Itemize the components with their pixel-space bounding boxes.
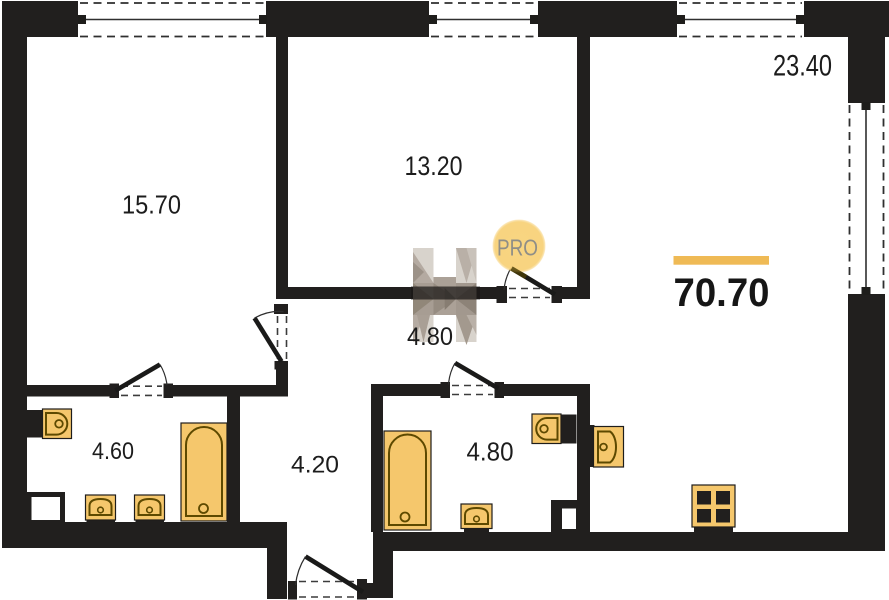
- svg-text:4.20: 4.20: [291, 452, 339, 479]
- svg-text:4.80: 4.80: [407, 323, 453, 351]
- svg-text:4.60: 4.60: [92, 438, 134, 465]
- svg-text:PRO: PRO: [497, 235, 538, 261]
- svg-text:23.40: 23.40: [773, 50, 832, 83]
- svg-text:70.70: 70.70: [674, 271, 770, 315]
- svg-text:4.80: 4.80: [467, 437, 514, 467]
- svg-text:13.20: 13.20: [405, 151, 463, 181]
- svg-text:15.70: 15.70: [122, 190, 181, 220]
